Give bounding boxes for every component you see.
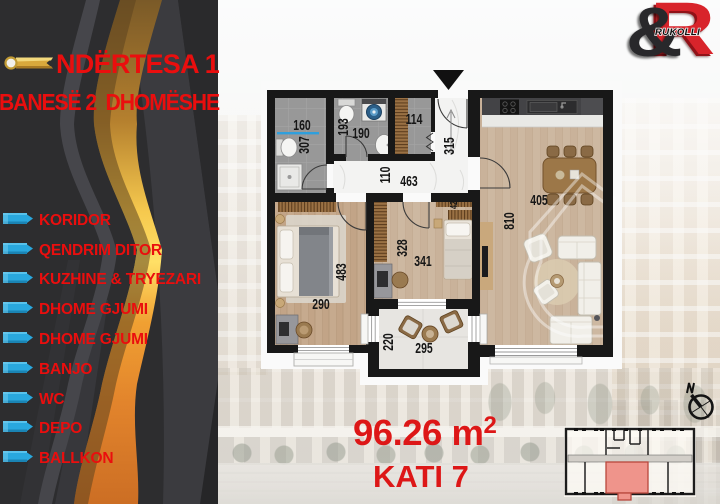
svg-text:810: 810	[501, 212, 517, 229]
svg-text:220: 220	[380, 333, 396, 350]
svg-text:328: 328	[394, 239, 410, 256]
svg-text:483: 483	[333, 263, 349, 280]
svg-text:341: 341	[414, 253, 431, 269]
svg-text:405: 405	[530, 192, 547, 208]
svg-text:315: 315	[441, 137, 457, 154]
svg-text:295: 295	[415, 340, 432, 356]
svg-text:463: 463	[400, 173, 417, 189]
svg-text:190: 190	[352, 125, 369, 141]
svg-text:193: 193	[335, 118, 351, 135]
svg-text:160: 160	[293, 117, 310, 133]
svg-text:290: 290	[312, 296, 329, 312]
svg-text:307: 307	[296, 136, 312, 153]
svg-text:RUKOLLI: RUKOLLI	[655, 27, 700, 38]
svg-text:42: 42	[448, 201, 459, 209]
svg-text:114: 114	[406, 111, 423, 127]
svg-text:110: 110	[377, 167, 393, 184]
